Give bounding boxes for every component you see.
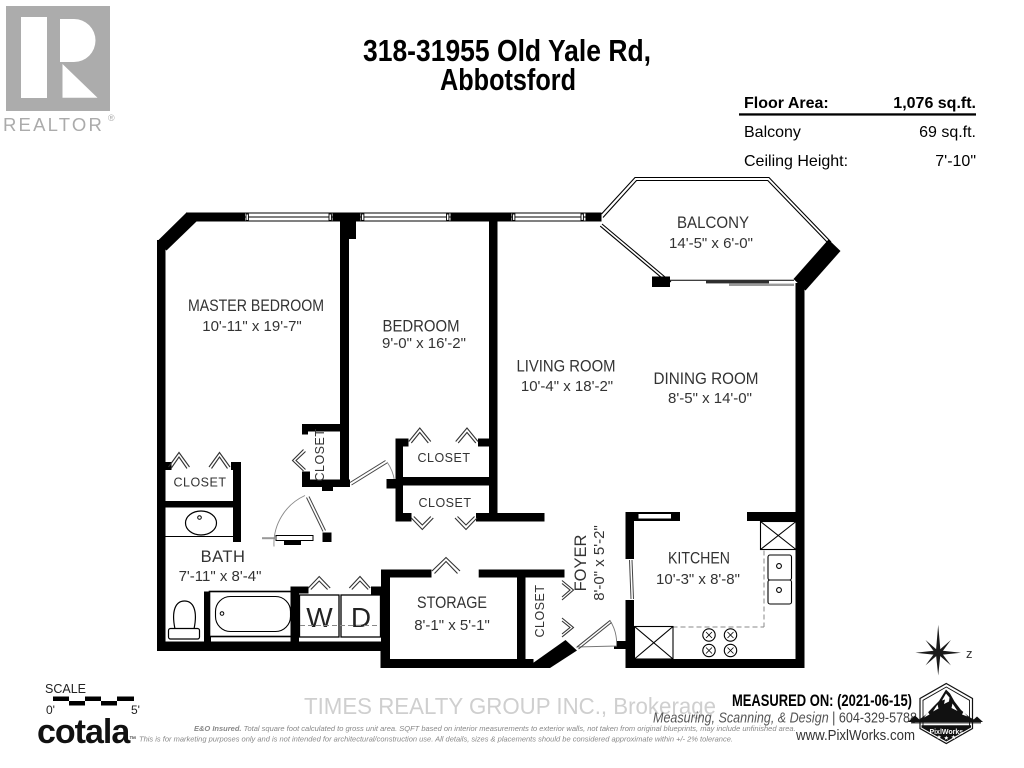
svg-text:Balcony: Balcony: [744, 124, 801, 141]
svg-text:Floor Area:: Floor Area:: [744, 95, 829, 112]
svg-text:D: D: [351, 602, 371, 633]
svg-text:MEASURED ON: (2021-06-15): MEASURED ON: (2021-06-15): [732, 692, 912, 710]
svg-text:1,076 sq.ft.: 1,076 sq.ft.: [893, 95, 976, 112]
svg-text:BALCONY: BALCONY: [677, 214, 749, 232]
svg-text:BATH: BATH: [201, 548, 246, 566]
svg-text:CLOSET: CLOSET: [533, 584, 547, 637]
svg-text:7'-10": 7'-10": [935, 153, 976, 170]
svg-text:BEDROOM: BEDROOM: [383, 318, 460, 336]
svg-text:FOYER: FOYER: [572, 534, 590, 591]
svg-text:CLOSET: CLOSET: [173, 476, 226, 490]
svg-text:REALTOR: REALTOR: [3, 114, 104, 135]
svg-text:5': 5': [131, 703, 140, 717]
svg-text:8'-1" x 5'-1": 8'-1" x 5'-1": [414, 617, 490, 634]
svg-text:MASTER BEDROOM: MASTER BEDROOM: [188, 297, 324, 315]
svg-text:10'-4" x 18'-2": 10'-4" x 18'-2": [521, 378, 613, 395]
svg-text:™: ™: [129, 736, 136, 743]
svg-text:LIVING ROOM: LIVING ROOM: [517, 358, 616, 376]
svg-text:DINING ROOM: DINING ROOM: [654, 370, 759, 388]
svg-text:z: z: [966, 646, 973, 661]
svg-text:CLOSET: CLOSET: [313, 428, 327, 481]
svg-text:KITCHEN: KITCHEN: [668, 550, 730, 568]
svg-text:Measuring, Scanning, & Design: Measuring, Scanning, & Design | 604-329-…: [653, 711, 917, 727]
svg-text:Abbotsford: Abbotsford: [440, 62, 576, 97]
svg-text:CLOSET: CLOSET: [417, 451, 470, 465]
svg-text:Ceiling Height:: Ceiling Height:: [744, 153, 848, 170]
svg-text:7'-11" x 8'-4": 7'-11" x 8'-4": [179, 568, 262, 585]
svg-text:8'-0" x 5'-2": 8'-0" x 5'-2": [591, 525, 608, 601]
svg-text:9'-0" x 16'-2": 9'-0" x 16'-2": [382, 335, 466, 352]
svg-text:69 sq.ft.: 69 sq.ft.: [919, 124, 976, 141]
svg-text:8'-5" x 14'-0": 8'-5" x 14'-0": [668, 390, 752, 407]
svg-text:www.PixlWorks.com: www.PixlWorks.com: [795, 728, 915, 744]
svg-text:CLOSET: CLOSET: [418, 496, 471, 510]
svg-text:cotala: cotala: [37, 713, 131, 751]
svg-text:W: W: [306, 602, 333, 633]
svg-text:14'-5" x 6'-0": 14'-5" x 6'-0": [669, 235, 753, 252]
svg-text:SCALE: SCALE: [45, 682, 86, 696]
svg-text:PixlWorks: PixlWorks: [929, 729, 963, 736]
svg-text:This is for marketing purposes: This is for marketing purposes only and …: [139, 735, 733, 744]
svg-text:10'-11" x 19'-7": 10'-11" x 19'-7": [202, 318, 302, 335]
svg-text:STORAGE: STORAGE: [417, 594, 487, 612]
svg-text:®: ®: [108, 113, 115, 123]
svg-text:10'-3" x 8'-8": 10'-3" x 8'-8": [656, 571, 740, 588]
